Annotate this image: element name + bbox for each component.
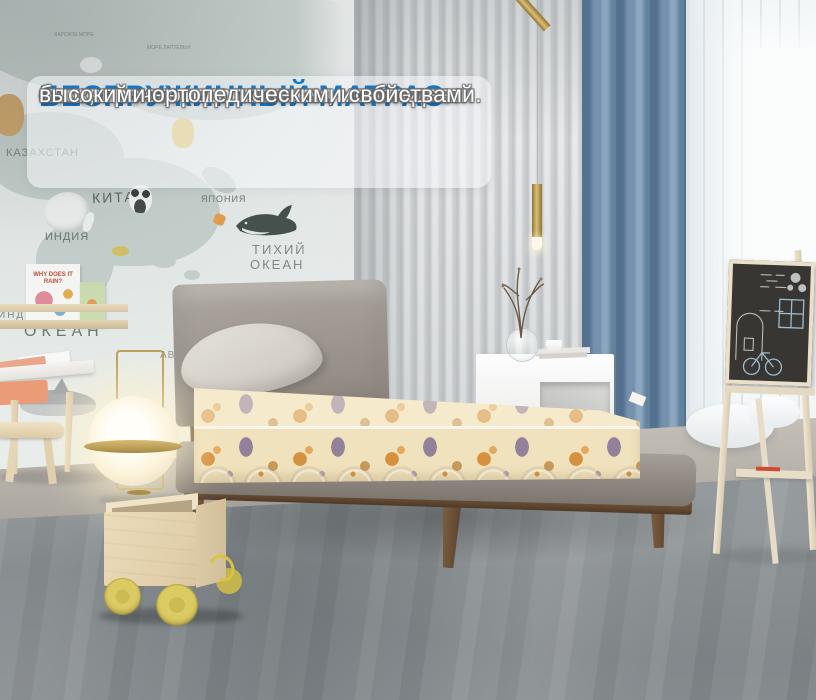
orca-illustration bbox=[232, 204, 302, 240]
map-label-japan: ЯПОНИЯ bbox=[201, 194, 246, 204]
shelf-front-rail bbox=[0, 304, 128, 312]
stool-seat bbox=[0, 422, 64, 438]
map-label-kara-sea: КАРСКОЕ МОРЕ bbox=[52, 32, 96, 38]
cart-wheel bbox=[104, 578, 141, 615]
stool-leg bbox=[43, 436, 57, 485]
mattress-side-face bbox=[194, 426, 640, 483]
table-drawer-bin bbox=[0, 380, 49, 406]
chalkboard bbox=[725, 260, 815, 387]
map-label-india: ИНДИЯ bbox=[45, 231, 89, 243]
pendant-lamp-lower bbox=[532, 184, 542, 238]
wooden-toy-cart bbox=[98, 496, 246, 628]
turtle-illustration bbox=[112, 246, 129, 256]
chalkboard-easel bbox=[716, 248, 816, 578]
book-why-does-it-rain: WHY DOES IT RAIN? bbox=[26, 264, 80, 326]
wall-bookshelf: WHY DOES IT RAIN? bbox=[0, 262, 128, 334]
overlay-body-line-3: высокими ортопедическими свойствами. bbox=[39, 81, 482, 108]
deer-illustration bbox=[0, 94, 24, 136]
shelf-board bbox=[0, 320, 128, 329]
cart-front-panel bbox=[104, 512, 196, 586]
lamp-foot bbox=[127, 490, 151, 495]
panda-illustration bbox=[129, 185, 152, 213]
bedroom-product-photo: РОССИЯ КАРСКОЕ МОРЕ МОРЕ ЛАПТЕВЫХ КАЗАХС… bbox=[0, 0, 816, 700]
wooden-stool bbox=[0, 418, 68, 482]
vase-branches bbox=[486, 256, 556, 338]
pendant-lamp-wire bbox=[537, 0, 538, 186]
polar-bear-illustration bbox=[80, 57, 102, 73]
red-chalk bbox=[756, 467, 780, 472]
book-title: WHY DOES IT RAIN? bbox=[26, 264, 80, 286]
easel-rear-leg bbox=[755, 398, 778, 564]
cart-wheel bbox=[156, 584, 198, 626]
map-island bbox=[152, 256, 176, 268]
lamp-brass-ring bbox=[84, 440, 182, 453]
map-island bbox=[184, 270, 200, 280]
marketing-text-overlay: БЕСПРУЖИННЫЙ МАТРАС основой которого явл… bbox=[27, 76, 491, 188]
stool-leg bbox=[5, 436, 19, 483]
easel-shadow bbox=[720, 548, 816, 564]
map-label-laptev-sea: МОРЕ ЛАПТЕВЫХ bbox=[146, 45, 192, 51]
pendant-lamp-bulb bbox=[532, 237, 542, 250]
